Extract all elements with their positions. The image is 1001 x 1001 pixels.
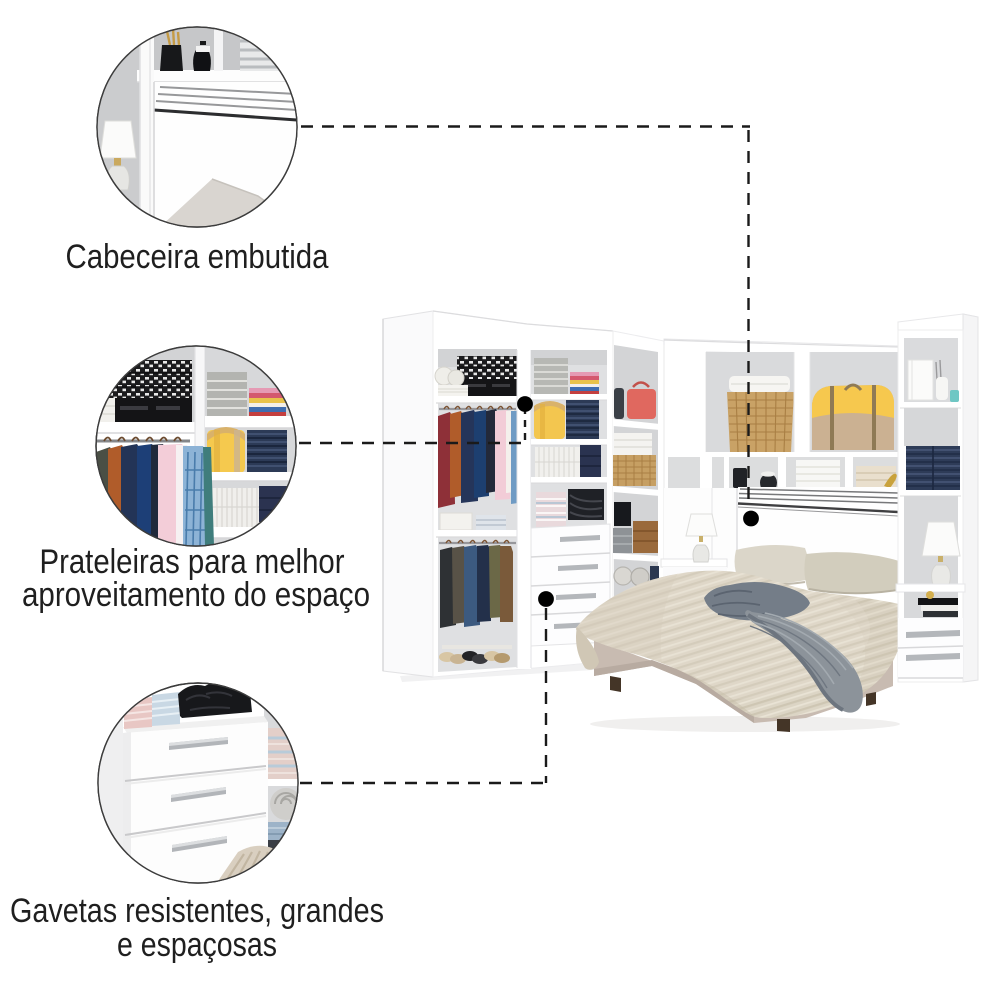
svg-text:aproveitamento do espaço: aproveitamento do espaço (22, 576, 370, 614)
svg-text:Gavetas resistentes, grandes: Gavetas resistentes, grandes (10, 892, 384, 930)
svg-text:Cabeceira embutida: Cabeceira embutida (66, 238, 329, 276)
svg-text:e espaçosas: e espaçosas (117, 926, 277, 964)
